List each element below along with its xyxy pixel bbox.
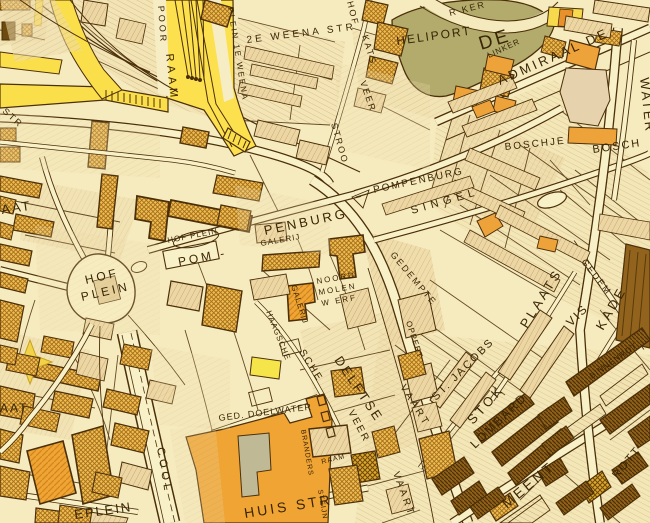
svg-text:AAT: AAT: [0, 401, 28, 415]
